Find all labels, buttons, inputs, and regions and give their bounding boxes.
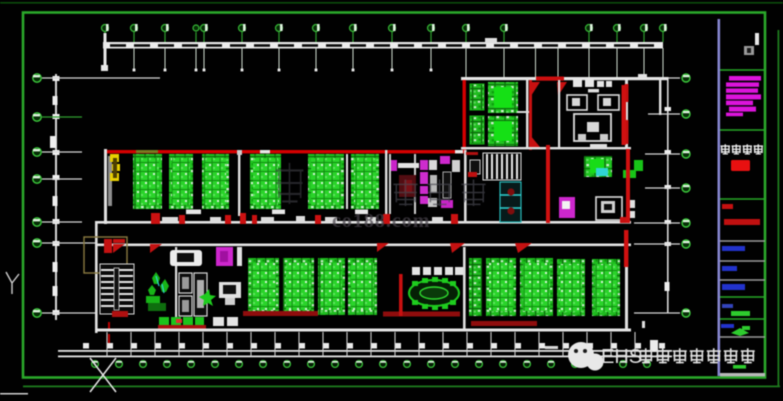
svg-text:co188.com: co188.com xyxy=(332,210,430,232)
svg-text:EHS: EHS xyxy=(601,346,642,368)
